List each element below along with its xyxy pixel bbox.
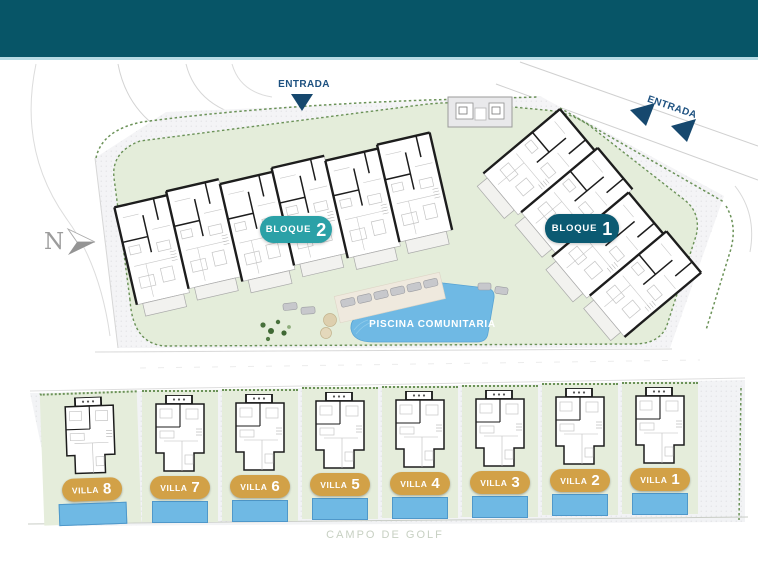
villa-2-floorplan [552,388,608,468]
villa-1-pool [632,493,688,515]
villa-4-pool [392,497,448,519]
villa-plot-6: VILLA 6 [222,389,298,521]
villa-7-badge[interactable]: VILLA 7 [150,476,210,499]
villa-3-badge[interactable]: VILLA 3 [470,471,530,494]
villa-1-badge[interactable]: VILLA 1 [630,468,690,491]
villa-4-number: 4 [431,476,439,491]
villa-2-number: 2 [591,473,599,488]
villa-8-badge[interactable]: VILLA 8 [61,477,122,502]
entrance-label-top: ENTRADA [268,79,340,90]
site-plan-page: BLOQUE 2 BLOQUE 1 ENTRADA ENTRADA N PISC… [0,0,758,564]
north-indicator: N [44,226,99,258]
header-bar [0,0,758,60]
bloque-2-badge[interactable]: BLOQUE 2 [260,216,332,243]
villa-2-pool [552,494,608,516]
villa-5-pool [312,498,368,520]
villa-5-label: VILLA [320,480,347,490]
villa-4-badge[interactable]: VILLA 4 [390,472,450,495]
villa-6-label: VILLA [240,482,267,492]
villa-8-label: VILLA [72,484,99,495]
masterplan-map: BLOQUE 2 BLOQUE 1 ENTRADA ENTRADA N PISC… [0,0,758,564]
villa-3-floorplan [472,390,528,470]
villa-5-floorplan [312,392,368,472]
north-label: N [44,231,64,254]
golf-course-label: CAMPO DE GOLF [295,529,475,541]
villa-6-number: 6 [271,479,279,494]
villa-1-label: VILLA [640,475,667,485]
villa-3-number: 3 [511,475,519,490]
villa-7-label: VILLA [160,483,187,493]
villa-6-pool [232,500,288,522]
villa-plot-1: VILLA 1 [622,382,698,514]
villa-5-number: 5 [351,477,359,492]
bloque-2-number: 2 [316,221,326,239]
villa-7-number: 7 [191,480,199,495]
villa-6-floorplan [232,394,288,474]
gate-building [448,97,512,127]
villa-4-floorplan [392,391,448,471]
villa-8-number: 8 [103,481,112,496]
villa-8-pool [58,502,127,526]
pool-label: PISCINA COMUNITARIA [345,319,520,330]
villa-plot-2: VILLA 2 [542,383,618,515]
bloque-1-number: 1 [602,220,612,238]
bloque-2-label: BLOQUE [266,224,311,235]
villa-plot-8: VILLA 8 [40,390,142,525]
villa-1-number: 1 [671,472,679,487]
villa-plot-3: VILLA 3 [462,385,538,517]
villa-5-badge[interactable]: VILLA 5 [310,473,370,496]
villa-4-label: VILLA [400,479,427,489]
bloque-1-label: BLOQUE [552,223,597,234]
villa-2-badge[interactable]: VILLA 2 [550,469,610,492]
villa-3-label: VILLA [480,478,507,488]
villa-plot-7: VILLA 7 [142,390,218,522]
villa-3-pool [472,496,528,518]
villa-6-badge[interactable]: VILLA 6 [230,475,290,498]
villa-7-floorplan [152,395,208,475]
villa-plot-5: VILLA 5 [302,387,378,519]
north-arrow-icon [65,226,99,258]
villa-2-label: VILLA [560,476,587,486]
villa-plot-4: VILLA 4 [382,386,458,518]
villa-7-pool [152,501,208,523]
villa-1-floorplan [632,387,688,467]
bloque-1-badge[interactable]: BLOQUE 1 [545,214,619,243]
villa-8-floorplan [60,396,119,478]
